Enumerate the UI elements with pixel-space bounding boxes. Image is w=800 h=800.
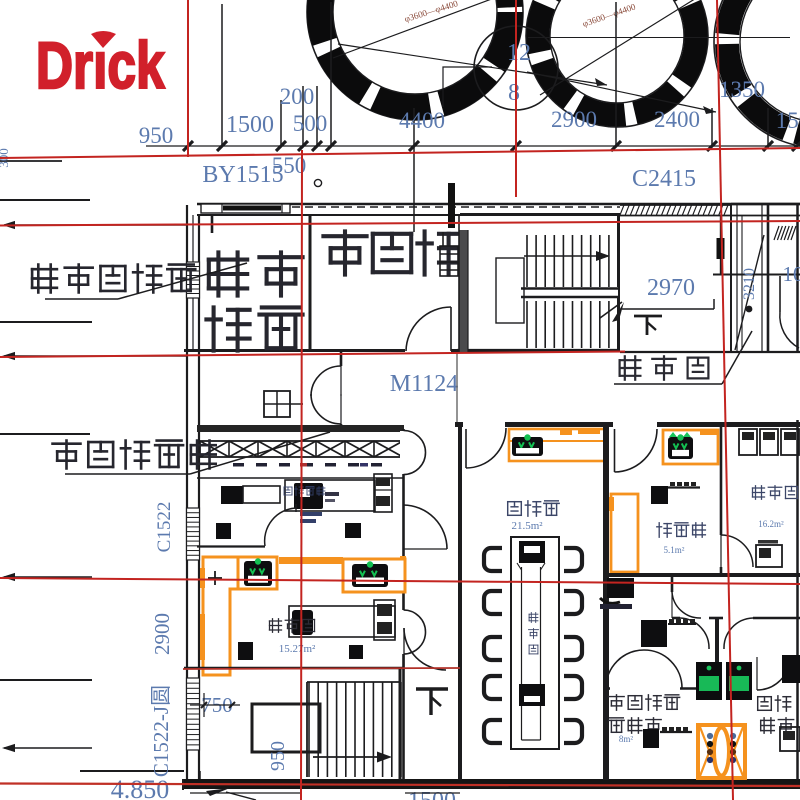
svg-text:5.1m²: 5.1m² — [664, 545, 685, 555]
svg-text:C2415: C2415 — [632, 166, 696, 192]
svg-text:2400: 2400 — [654, 107, 700, 132]
svg-text:16.2m²: 16.2m² — [758, 519, 784, 529]
svg-text:1500: 1500 — [408, 788, 456, 800]
svg-text:BY1515: BY1515 — [202, 162, 283, 188]
svg-text:950: 950 — [139, 123, 174, 148]
svg-text:2900: 2900 — [551, 107, 597, 132]
svg-text:1350: 1350 — [719, 77, 765, 102]
svg-text:12: 12 — [507, 40, 531, 66]
svg-text:200: 200 — [280, 84, 315, 109]
svg-text:8m²: 8m² — [619, 734, 634, 744]
svg-text:M1124: M1124 — [390, 371, 458, 397]
svg-text:C1522: C1522 — [154, 502, 175, 553]
svg-text:2970: 2970 — [647, 275, 695, 301]
svg-text:21.5m²: 21.5m² — [511, 520, 543, 532]
svg-text:150: 150 — [776, 108, 800, 133]
svg-text:1500: 1500 — [226, 112, 274, 138]
svg-text:3210: 3210 — [741, 268, 758, 300]
svg-text:500: 500 — [293, 111, 328, 136]
svg-text:15.27m²: 15.27m² — [279, 643, 316, 655]
svg-text:C1522-J圆: C1522-J圆 — [149, 685, 173, 777]
svg-text:2900: 2900 — [150, 613, 174, 655]
svg-text:10: 10 — [783, 262, 800, 286]
svg-text:4.850: 4.850 — [111, 775, 170, 800]
svg-text:8: 8 — [508, 80, 520, 106]
svg-text:950: 950 — [267, 741, 289, 771]
svg-text:4400: 4400 — [399, 108, 445, 133]
